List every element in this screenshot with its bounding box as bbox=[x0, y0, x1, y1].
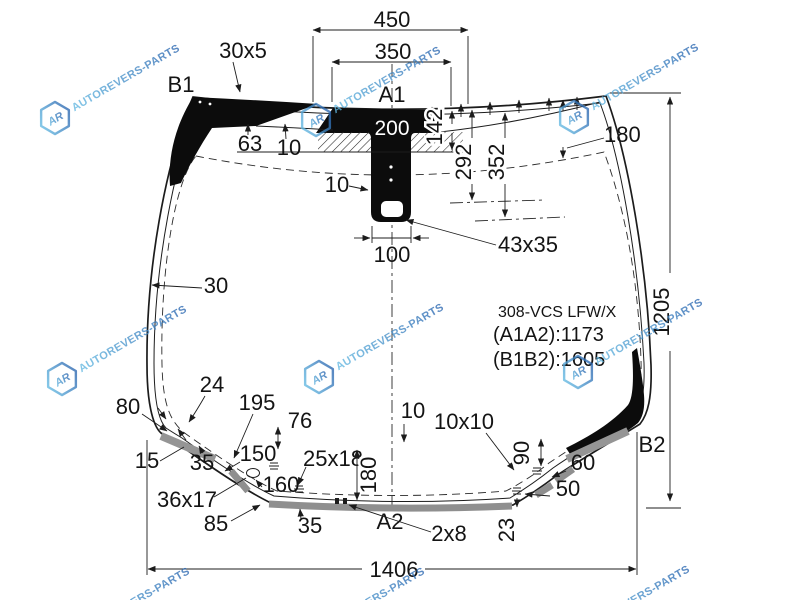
dim-63: 63 bbox=[238, 124, 262, 156]
point-label-b2: B2 bbox=[639, 432, 666, 457]
dim-85-label: 85 bbox=[204, 511, 228, 536]
bracket-dot bbox=[389, 165, 392, 168]
clip-mark bbox=[532, 468, 542, 474]
dim-10-band: 10 bbox=[277, 124, 301, 160]
dim-35-bottom: 35 bbox=[298, 509, 322, 538]
dim-292-label: 292 bbox=[451, 144, 476, 181]
dim-10b-label: 10 bbox=[325, 172, 349, 197]
dim-30x5: 30x5 bbox=[219, 38, 267, 92]
dim-10x10-label: 10x10 bbox=[434, 409, 494, 434]
b1-dot bbox=[209, 103, 212, 106]
watermark-brand: AUTOREVERS-PARTS bbox=[334, 301, 446, 373]
watermark-brand: AUTOREVERS-PARTS bbox=[589, 41, 701, 113]
dim-63-label: 63 bbox=[238, 131, 262, 156]
dim-180-bottom: 180 bbox=[356, 450, 381, 500]
dim-180b-label: 180 bbox=[356, 457, 381, 494]
dim-142-label: 142 bbox=[422, 109, 447, 146]
part-b1b2-length: (B1B2):1605 bbox=[493, 349, 605, 371]
dim-10-bottom: 10 bbox=[401, 398, 425, 442]
windshield-diagram-page: 450 350 30x5 B1 A1 200 63 10 10 142 292 … bbox=[0, 0, 800, 600]
dim-160-label: 160 bbox=[263, 472, 300, 497]
watermark-initials: AR bbox=[564, 109, 585, 128]
dim-35b-label: 35 bbox=[298, 513, 322, 538]
dim-90-label: 90 bbox=[509, 441, 534, 465]
dim-150-label: 150 bbox=[240, 441, 277, 466]
dim-350-label: 350 bbox=[375, 39, 412, 64]
dim-10x10: 10x10 bbox=[434, 409, 514, 470]
part-code: 308-VCS LFW/X bbox=[498, 304, 617, 321]
dim-15: 15 bbox=[135, 447, 184, 473]
dim-30-label: 30 bbox=[204, 273, 228, 298]
watermark: AR AUTOREVERS-PARTS bbox=[41, 296, 192, 399]
part-a1a2-length: (A1A2):1173 bbox=[493, 324, 604, 346]
dim-25x18: 25x18 bbox=[298, 446, 363, 485]
dim-150: 150 bbox=[225, 441, 276, 471]
watermark: AR AUTOREVERS-PARTS bbox=[34, 35, 185, 138]
dim-23-label: 23 bbox=[494, 518, 519, 542]
moulding-strip bbox=[536, 485, 552, 495]
pin-2x8 bbox=[343, 498, 347, 504]
dim-60: 60 bbox=[552, 450, 595, 477]
dim-36x17-label: 36x17 bbox=[157, 487, 217, 512]
dim-43x35-label: 43x35 bbox=[498, 232, 558, 257]
watermark-brand: AUTOREVERS-PARTS bbox=[70, 42, 182, 114]
watermark-initials: AR bbox=[52, 371, 73, 390]
dim-60-label: 60 bbox=[571, 450, 595, 475]
dim-24-label: 24 bbox=[200, 372, 224, 397]
dim-200-label: 200 bbox=[374, 117, 409, 140]
dim-2x8-label: 2x8 bbox=[431, 521, 466, 546]
bracket-dot bbox=[389, 178, 392, 181]
dim-160: 160 bbox=[256, 472, 299, 497]
hole-36x17 bbox=[247, 469, 260, 478]
moulding-strip bbox=[269, 504, 512, 508]
b1-dot bbox=[199, 101, 202, 104]
bracket-window-43x35 bbox=[381, 201, 403, 217]
dim-80: 80 bbox=[116, 394, 167, 431]
dim-25x18-label: 25x18 bbox=[303, 446, 363, 471]
watermark: AR AUTOREVERS-PARTS bbox=[298, 294, 449, 397]
dim-76: 76 bbox=[278, 408, 312, 449]
windshield-technical-drawing: 450 350 30x5 B1 A1 200 63 10 10 142 292 … bbox=[0, 0, 800, 600]
dim-10a-label: 10 bbox=[277, 135, 301, 160]
dim-10c-label: 10 bbox=[401, 398, 425, 423]
dim-80-label: 80 bbox=[116, 394, 140, 419]
watermark-initials: AR bbox=[45, 110, 66, 129]
dim-195-label: 195 bbox=[239, 390, 276, 415]
dim-352-label: 352 bbox=[484, 144, 509, 181]
dim-90: 90 bbox=[509, 439, 541, 466]
dim-180tr-label: 180 bbox=[604, 122, 641, 147]
watermark: AR AUTOREVERS-PARTS bbox=[544, 556, 695, 600]
watermark-initials: AR bbox=[309, 369, 330, 388]
watermark: AR AUTOREVERS-PARTS bbox=[44, 558, 195, 600]
dim-450-label: 450 bbox=[374, 7, 411, 32]
dim-36x17: 36x17 bbox=[157, 478, 246, 512]
dim-100-label: 100 bbox=[374, 242, 411, 267]
dim-100: 100 bbox=[354, 226, 429, 267]
dim-10-stem: 10 bbox=[325, 172, 368, 197]
frit-hatch-left bbox=[318, 132, 371, 152]
dim-43x35: 43x35 bbox=[406, 220, 558, 257]
dim-76-label: 76 bbox=[288, 408, 312, 433]
dim-24: 24 bbox=[189, 372, 224, 422]
dim-35-left: 35 bbox=[190, 446, 214, 475]
dim-30x5-label: 30x5 bbox=[219, 38, 267, 63]
watermark-brand: AUTOREVERS-PARTS bbox=[80, 565, 192, 600]
point-label-b1: B1 bbox=[168, 72, 195, 97]
watermark-brand: AUTOREVERS-PARTS bbox=[77, 303, 189, 375]
pin-2x8 bbox=[335, 498, 339, 504]
dim-35a-label: 35 bbox=[190, 450, 214, 475]
dim-30-edge: 30 bbox=[152, 273, 228, 298]
dim-50-label: 50 bbox=[556, 476, 580, 501]
